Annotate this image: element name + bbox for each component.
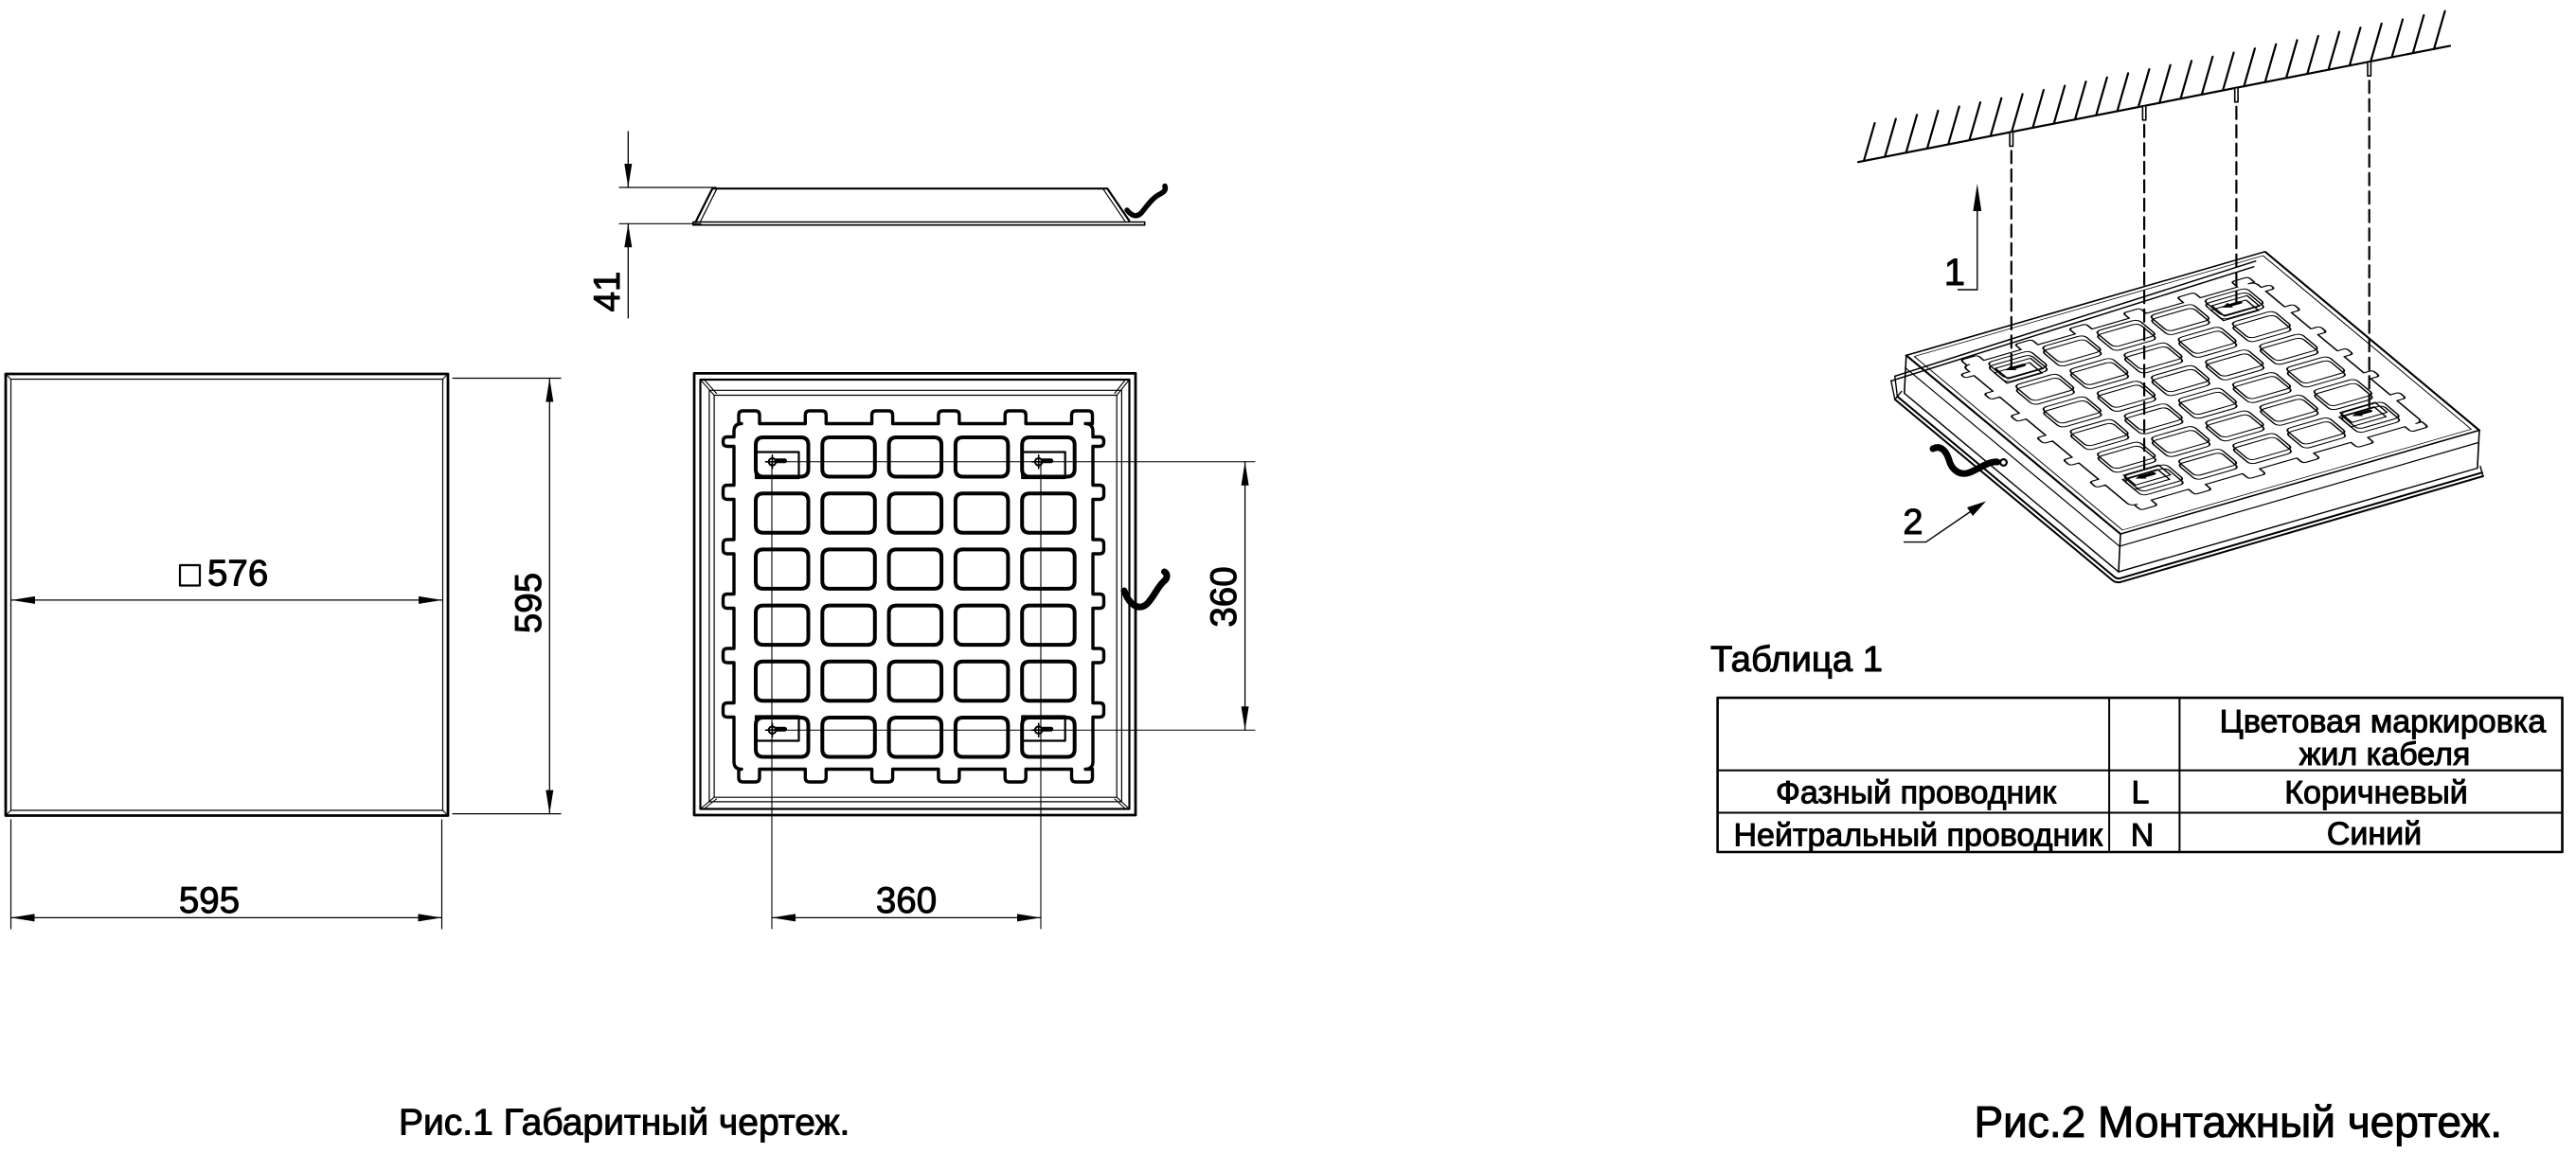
svg-text:N: N xyxy=(2131,818,2155,854)
svg-text:Таблица 1: Таблица 1 xyxy=(1710,639,1883,680)
svg-text:L: L xyxy=(2132,775,2150,811)
svg-text:595: 595 xyxy=(179,880,240,921)
svg-text:Коричневый: Коричневый xyxy=(2284,775,2468,811)
svg-text:1: 1 xyxy=(1944,252,1965,293)
svg-text:Нейтральный проводник: Нейтральный проводник xyxy=(1734,818,2104,854)
svg-text:360: 360 xyxy=(876,880,937,921)
svg-text:Синий: Синий xyxy=(2327,816,2422,852)
svg-text:Рис.1 Габаритный чертеж.: Рис.1 Габаритный чертеж. xyxy=(399,1103,850,1144)
svg-text:360: 360 xyxy=(1204,566,1244,627)
svg-text:41: 41 xyxy=(587,272,628,312)
svg-text:2: 2 xyxy=(1903,503,1923,542)
svg-text:Цветовая маркировка: Цветовая маркировка xyxy=(2220,704,2547,740)
svg-text:Рис.2 Монтажный чертеж.: Рис.2 Монтажный чертеж. xyxy=(1975,1097,2502,1146)
svg-text:жил кабеля: жил кабеля xyxy=(2299,737,2471,772)
svg-text:576: 576 xyxy=(207,554,268,595)
svg-text:595: 595 xyxy=(509,573,549,633)
svg-text:Фазный проводник: Фазный проводник xyxy=(1776,775,2057,811)
